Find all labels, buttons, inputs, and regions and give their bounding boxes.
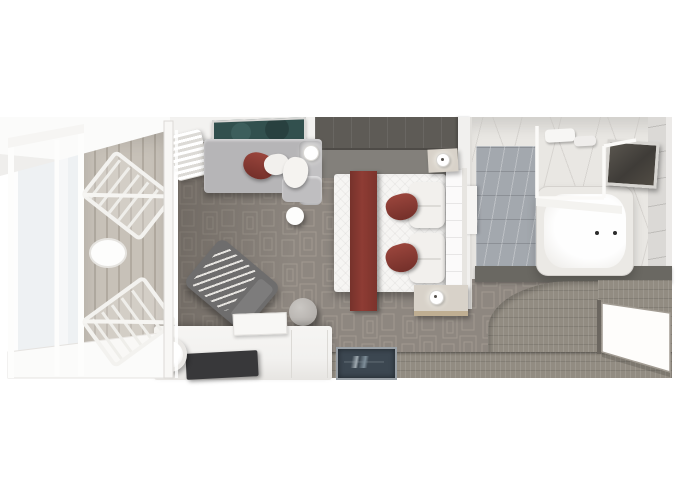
balcony-glass-railing [8, 134, 86, 378]
tub-drain [613, 231, 617, 235]
desk-drawer-seams [256, 330, 330, 378]
navy-doormat [336, 347, 397, 380]
tub-faucet [595, 231, 599, 235]
wall-sconce [303, 145, 319, 161]
vanity-mirror [604, 139, 659, 189]
bedside-lamp [429, 290, 444, 305]
round-side-table [286, 207, 304, 225]
towel-shelf [574, 135, 596, 146]
bathtub [536, 186, 634, 276]
vanity-tray [233, 312, 288, 336]
shower-marble-floor [476, 146, 536, 268]
headboard-frame [462, 168, 467, 298]
table-lamp [152, 337, 187, 372]
tv-panel [185, 350, 258, 380]
towel-shelf [545, 128, 576, 143]
bedside-lamp [436, 153, 450, 167]
quilted-headboard [446, 170, 462, 296]
round-ottoman [289, 298, 317, 326]
wardrobe-band [315, 117, 465, 150]
maroon-bed-runner [350, 171, 377, 311]
suite-floorplan-render [0, 0, 680, 486]
doormat-motif [344, 356, 384, 368]
